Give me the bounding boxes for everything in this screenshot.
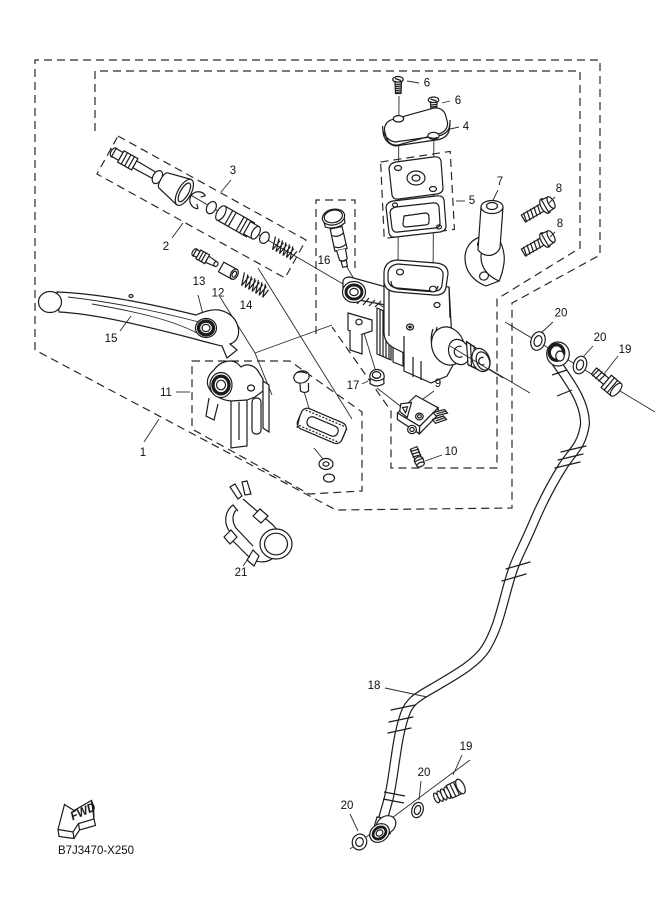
svg-text:12: 12 <box>212 288 225 300</box>
svg-text:6: 6 <box>455 95 461 107</box>
svg-text:20: 20 <box>341 800 354 812</box>
svg-text:21: 21 <box>235 567 248 579</box>
svg-text:5: 5 <box>469 195 475 207</box>
svg-text:3: 3 <box>230 165 236 177</box>
svg-text:17: 17 <box>347 380 360 392</box>
svg-text:15: 15 <box>105 333 118 345</box>
svg-text:20: 20 <box>594 332 607 344</box>
svg-text:19: 19 <box>619 344 632 356</box>
svg-text:18: 18 <box>368 680 381 692</box>
svg-text:13: 13 <box>193 276 206 288</box>
svg-text:19: 19 <box>460 741 473 753</box>
svg-text:8: 8 <box>556 183 562 195</box>
svg-text:20: 20 <box>418 767 431 779</box>
svg-text:B7J3470-X250: B7J3470-X250 <box>58 845 134 857</box>
svg-text:2: 2 <box>163 241 169 253</box>
svg-text:10: 10 <box>445 446 458 458</box>
svg-text:20: 20 <box>555 308 568 320</box>
svg-text:8: 8 <box>557 218 563 230</box>
svg-text:16: 16 <box>318 255 331 267</box>
svg-text:4: 4 <box>463 121 470 133</box>
svg-text:7: 7 <box>497 176 503 188</box>
svg-text:14: 14 <box>240 300 253 312</box>
svg-text:9: 9 <box>435 378 441 390</box>
svg-text:1: 1 <box>140 447 146 459</box>
svg-text:6: 6 <box>424 78 430 90</box>
svg-text:11: 11 <box>160 387 172 399</box>
